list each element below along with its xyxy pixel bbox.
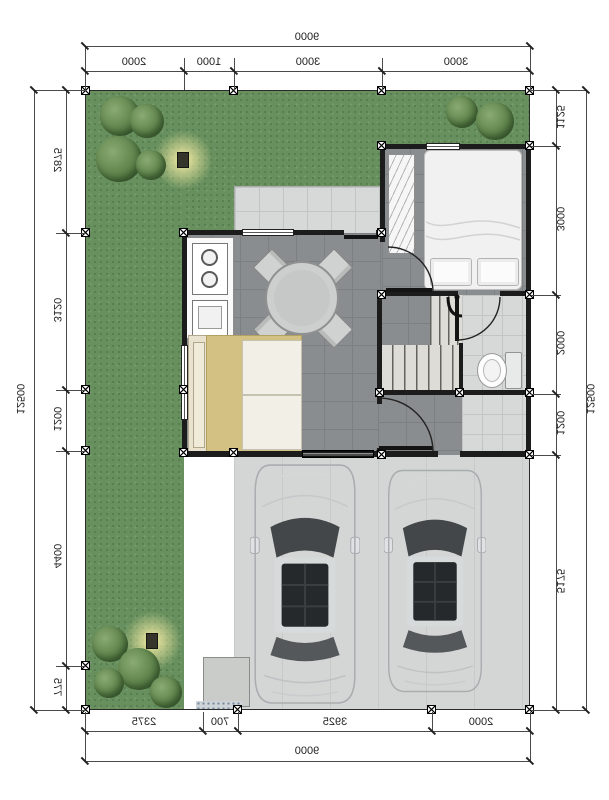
- column-marker: [229, 448, 238, 457]
- column-marker: [179, 385, 188, 394]
- dim-ext: [382, 58, 383, 90]
- dim-ext: [234, 58, 235, 90]
- dim-top-segment: 2000: [109, 56, 159, 68]
- dim-ext: [530, 46, 531, 90]
- dim-left-segment: 2875: [51, 130, 63, 190]
- dim-line: [85, 46, 530, 47]
- dim-bottom-segment: 3925: [310, 716, 360, 728]
- dim-line: [34, 90, 35, 710]
- dim-ext: [56, 233, 86, 234]
- column-marker: [179, 448, 188, 457]
- column-marker: [455, 388, 464, 397]
- dim-left-segment: 1200: [51, 389, 63, 449]
- dim-line: [85, 731, 530, 732]
- dim-right-segment: 5175: [554, 551, 566, 611]
- dim-ext: [56, 451, 86, 452]
- dim-right-segment: 1125: [554, 87, 566, 147]
- dim-left-total: 12500: [14, 369, 26, 429]
- dim-left-segment: 775: [51, 657, 63, 717]
- dim-top-segment: 1000: [184, 56, 234, 68]
- dim-top-segment: 3000: [283, 56, 333, 68]
- dim-line: [66, 90, 67, 710]
- dim-right-segment: 2000: [554, 313, 566, 373]
- dim-ext: [530, 712, 531, 762]
- dim-line: [85, 71, 530, 72]
- dim-top-segment: 3000: [431, 56, 481, 68]
- column-marker: [377, 450, 386, 459]
- dim-left-segment: 4400: [51, 526, 63, 586]
- dim-ext: [85, 712, 86, 762]
- column-marker: [377, 290, 386, 299]
- dim-right-total: 12500: [584, 369, 596, 429]
- column-marker: [525, 388, 534, 397]
- dim-left-segment: 3120: [51, 280, 63, 340]
- dim-top-total: 9000: [282, 31, 332, 43]
- dim-right-segment: 3000: [554, 189, 566, 249]
- dim-bottom-segment: 2000: [456, 716, 506, 728]
- dim-ext: [85, 46, 86, 90]
- dim-bottom-total: 9000: [282, 745, 332, 757]
- door-arcs-overlay: [0, 0, 609, 800]
- column-marker: [377, 228, 386, 237]
- dim-ext: [34, 90, 86, 91]
- dim-bottom-segment: 700: [195, 716, 245, 728]
- dim-line: [85, 761, 530, 762]
- floor-plan-canvas: 9000 2000 1000 3000 3000 2375 700 3925 2…: [0, 0, 609, 800]
- column-marker: [377, 141, 386, 150]
- column-marker: [179, 228, 188, 237]
- column-marker: [375, 388, 384, 397]
- dim-bottom-segment: 2375: [119, 716, 169, 728]
- dim-right-segment: 1200: [554, 393, 566, 453]
